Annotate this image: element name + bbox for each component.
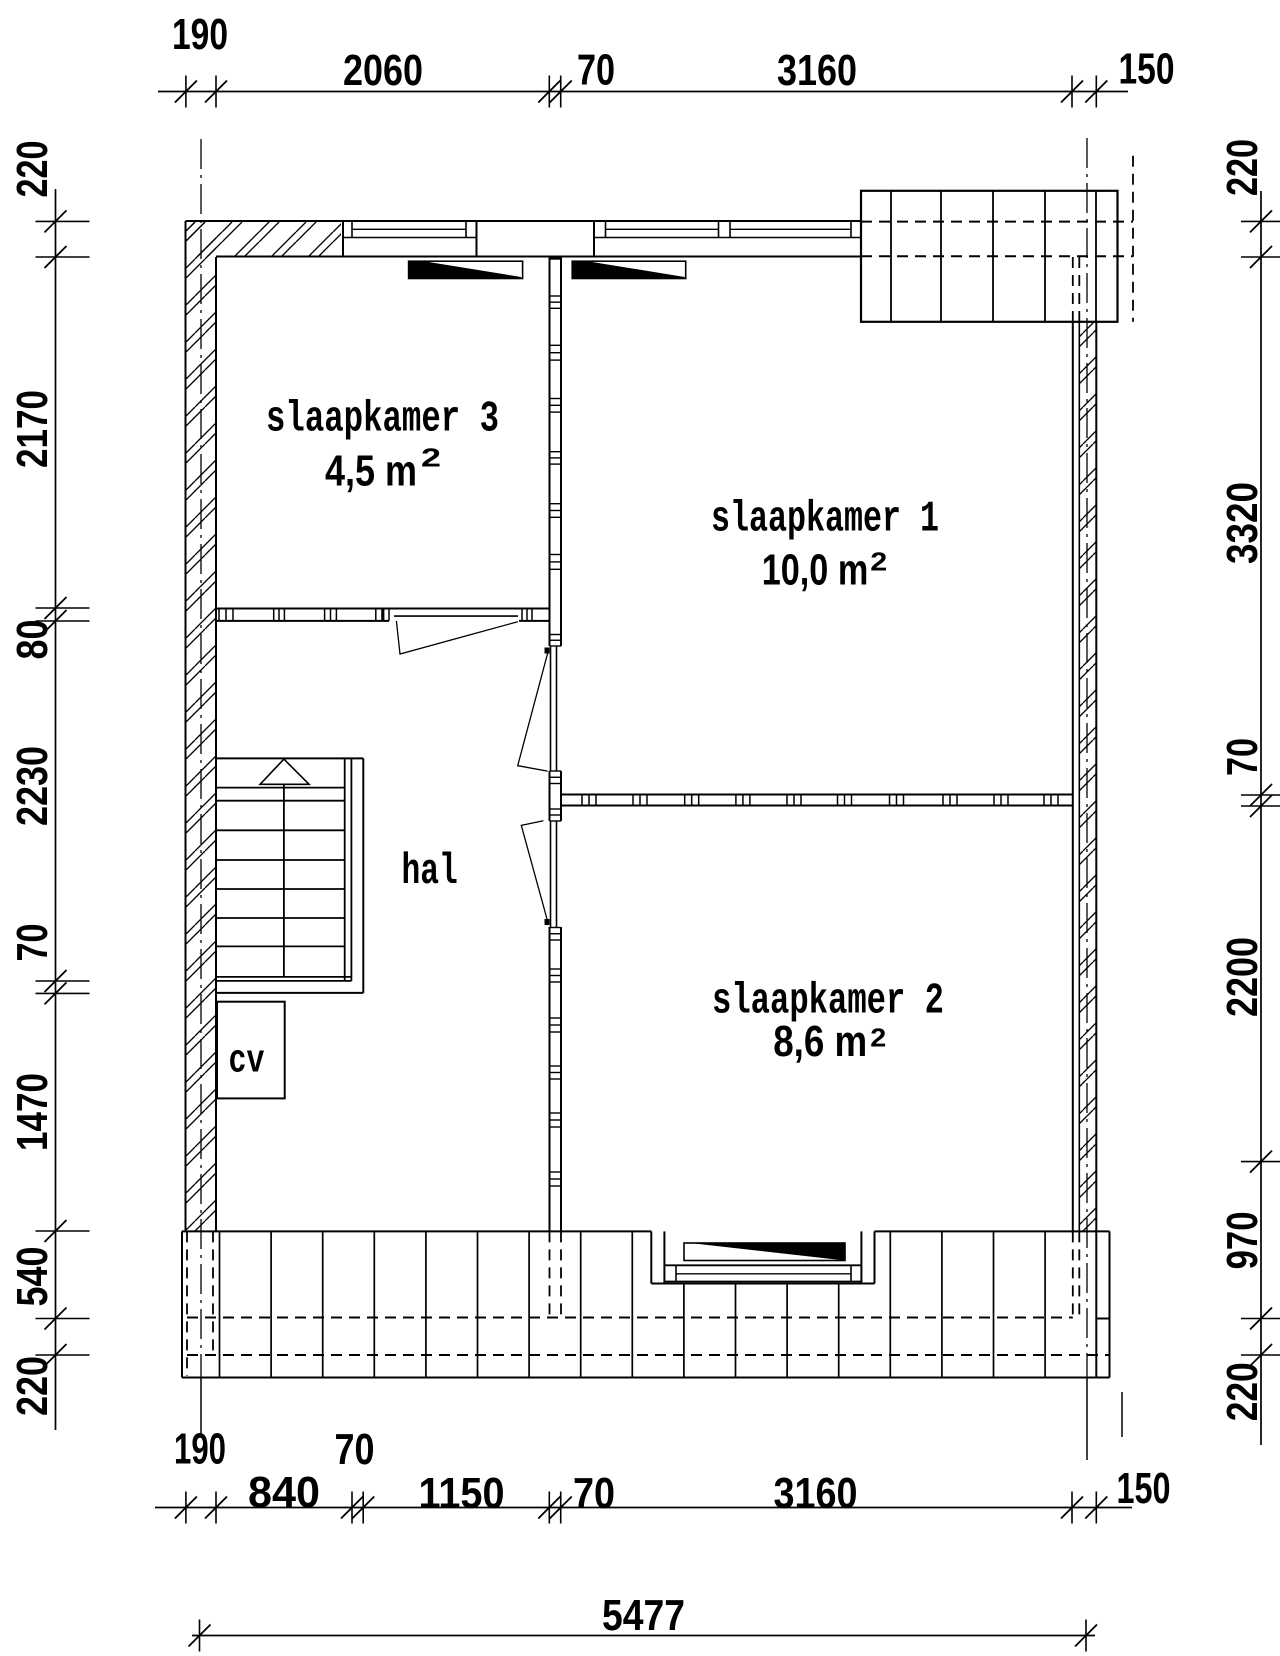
svg-text:5477: 5477 (602, 1591, 685, 1640)
svg-text:70: 70 (573, 1469, 615, 1518)
svg-text:220: 220 (1218, 1362, 1267, 1421)
svg-text:3320: 3320 (1218, 482, 1267, 564)
svg-text:4,5 m: 4,5 m (325, 447, 417, 496)
svg-text:190: 190 (174, 1425, 226, 1474)
svg-text:hal: hal (401, 847, 457, 897)
svg-text:70: 70 (1218, 738, 1267, 776)
svg-text:3160: 3160 (777, 46, 857, 95)
svg-text:80: 80 (8, 620, 57, 660)
svg-text:220: 220 (1218, 139, 1267, 196)
svg-text:220: 220 (8, 1356, 57, 1416)
svg-text:970: 970 (1218, 1211, 1267, 1269)
svg-text:2060: 2060 (343, 46, 423, 95)
svg-text:220: 220 (8, 141, 57, 198)
svg-text:2: 2 (870, 1023, 886, 1053)
svg-text:840: 840 (248, 1468, 320, 1517)
svg-text:2170: 2170 (8, 390, 57, 468)
svg-text:1470: 1470 (8, 1073, 57, 1151)
svg-text:2230: 2230 (8, 746, 57, 826)
svg-text:70: 70 (335, 1425, 375, 1474)
svg-text:slaapkamer 1: slaapkamer 1 (711, 495, 939, 545)
svg-text:3160: 3160 (774, 1469, 858, 1518)
svg-text:150: 150 (1119, 45, 1175, 94)
svg-text:slaapkamer 3: slaapkamer 3 (266, 395, 499, 445)
svg-text:8,6 m: 8,6 m (773, 1017, 867, 1066)
svg-text:2200: 2200 (1218, 937, 1267, 1017)
svg-text:1150: 1150 (419, 1469, 505, 1518)
svg-text:70: 70 (577, 46, 615, 95)
svg-text:2: 2 (421, 443, 441, 473)
svg-text:70: 70 (8, 924, 57, 962)
svg-text:2: 2 (870, 547, 887, 577)
svg-text:190: 190 (172, 10, 228, 59)
svg-text:150: 150 (1117, 1464, 1171, 1513)
svg-text:cv: cv (229, 1040, 265, 1085)
svg-text:540: 540 (8, 1247, 57, 1307)
svg-text:10,0 m: 10,0 m (762, 545, 869, 594)
